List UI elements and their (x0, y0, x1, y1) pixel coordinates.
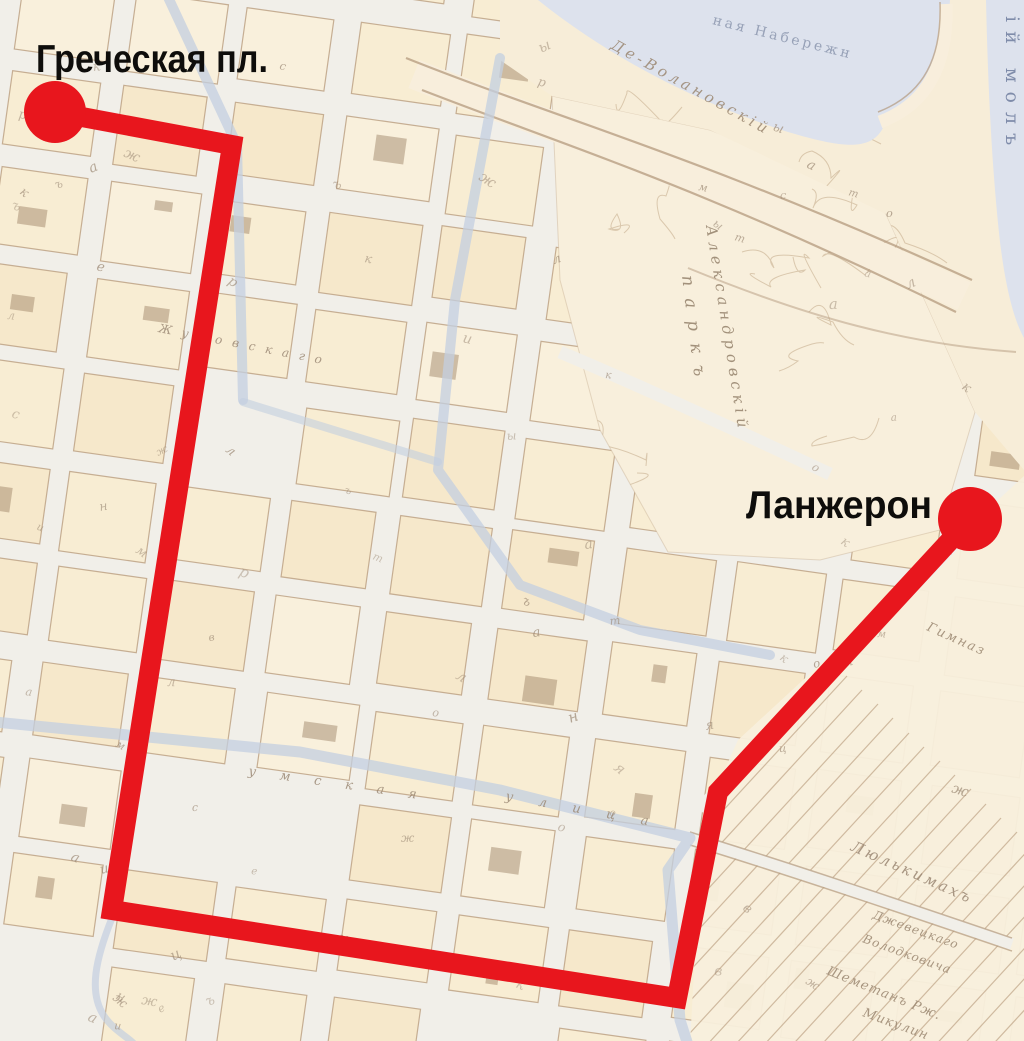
map-letter: и (114, 1019, 122, 1033)
city-block (48, 566, 146, 653)
map-letter: ж (401, 831, 415, 845)
city-block (265, 595, 360, 684)
city-block (727, 562, 827, 653)
building (373, 135, 407, 165)
city-block (576, 837, 675, 922)
map-letter: л (167, 675, 176, 690)
route-label-start: Греческая пл. (36, 38, 268, 81)
city-block (515, 438, 615, 531)
map-letter: ж (140, 992, 158, 1010)
city-block (432, 226, 526, 309)
map-letter: с (780, 189, 787, 202)
city-block (0, 356, 64, 449)
building (35, 876, 55, 899)
city-block (349, 805, 451, 893)
building (651, 664, 667, 683)
route-marker-end (938, 487, 1002, 551)
route-marker-start (24, 81, 86, 143)
building (59, 804, 88, 827)
city-block (0, 262, 67, 352)
map-label: ій молъ (1001, 16, 1023, 154)
city-block (143, 677, 235, 764)
map-letter: е (251, 866, 258, 878)
map-letter: ы (506, 428, 517, 443)
city-block (100, 181, 201, 273)
map-letter: л (7, 308, 16, 323)
map-canvas: ккалсжыоааъмалржтяъжлррскжымаиалмжиакакж… (0, 0, 1024, 1041)
city-block (19, 758, 121, 849)
city-block (602, 642, 696, 726)
map-letter: в (714, 963, 723, 980)
map-letter: о (886, 207, 893, 220)
map-letter: а (829, 296, 838, 313)
map-letter: ъ (332, 177, 343, 193)
city-block (281, 500, 376, 588)
city-block (4, 853, 103, 937)
map-letter: с (192, 801, 198, 814)
map-letter: т (609, 613, 621, 628)
map-letter: ц (779, 742, 787, 755)
building (488, 847, 522, 875)
route-label-end: Ланжерон (746, 484, 932, 527)
map-letter: а (890, 411, 897, 423)
building (522, 675, 557, 705)
historic-map-image: ккалсжыоааъмалржтяъжлррскжымаиалмжиакакж… (0, 0, 1024, 1041)
